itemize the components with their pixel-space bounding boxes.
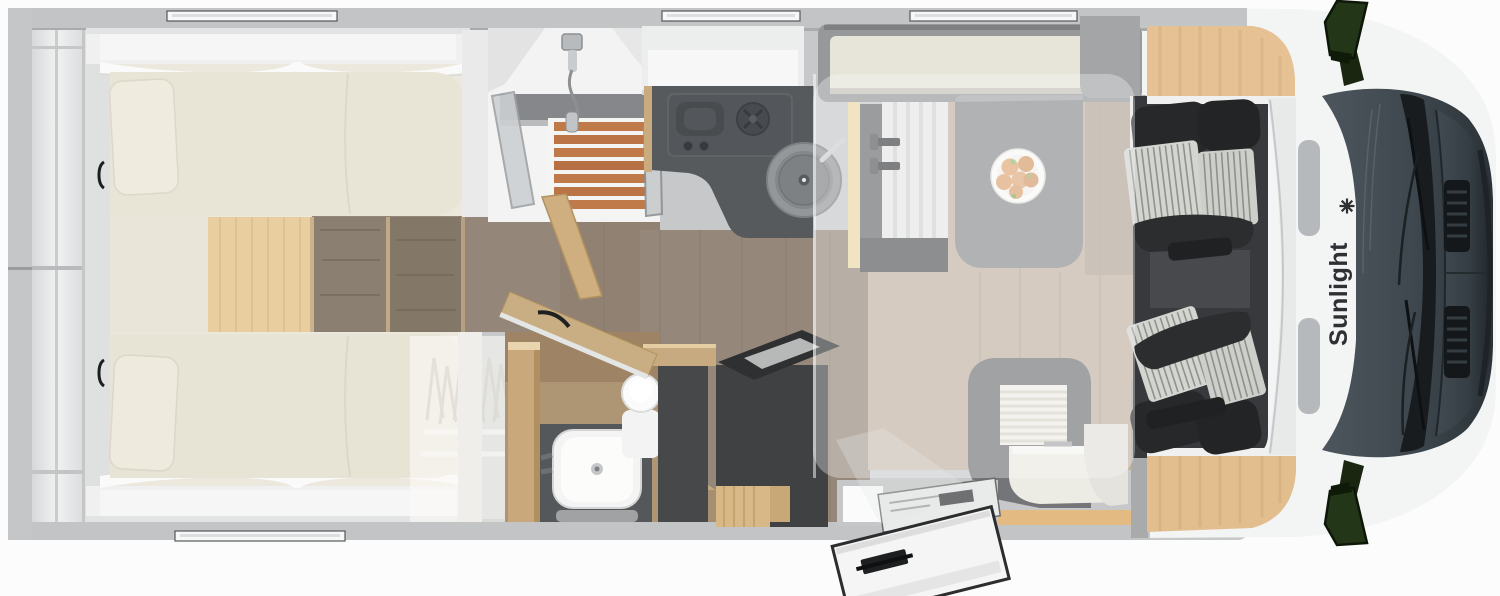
svg-text:Sunlight: Sunlight [1325, 242, 1353, 346]
